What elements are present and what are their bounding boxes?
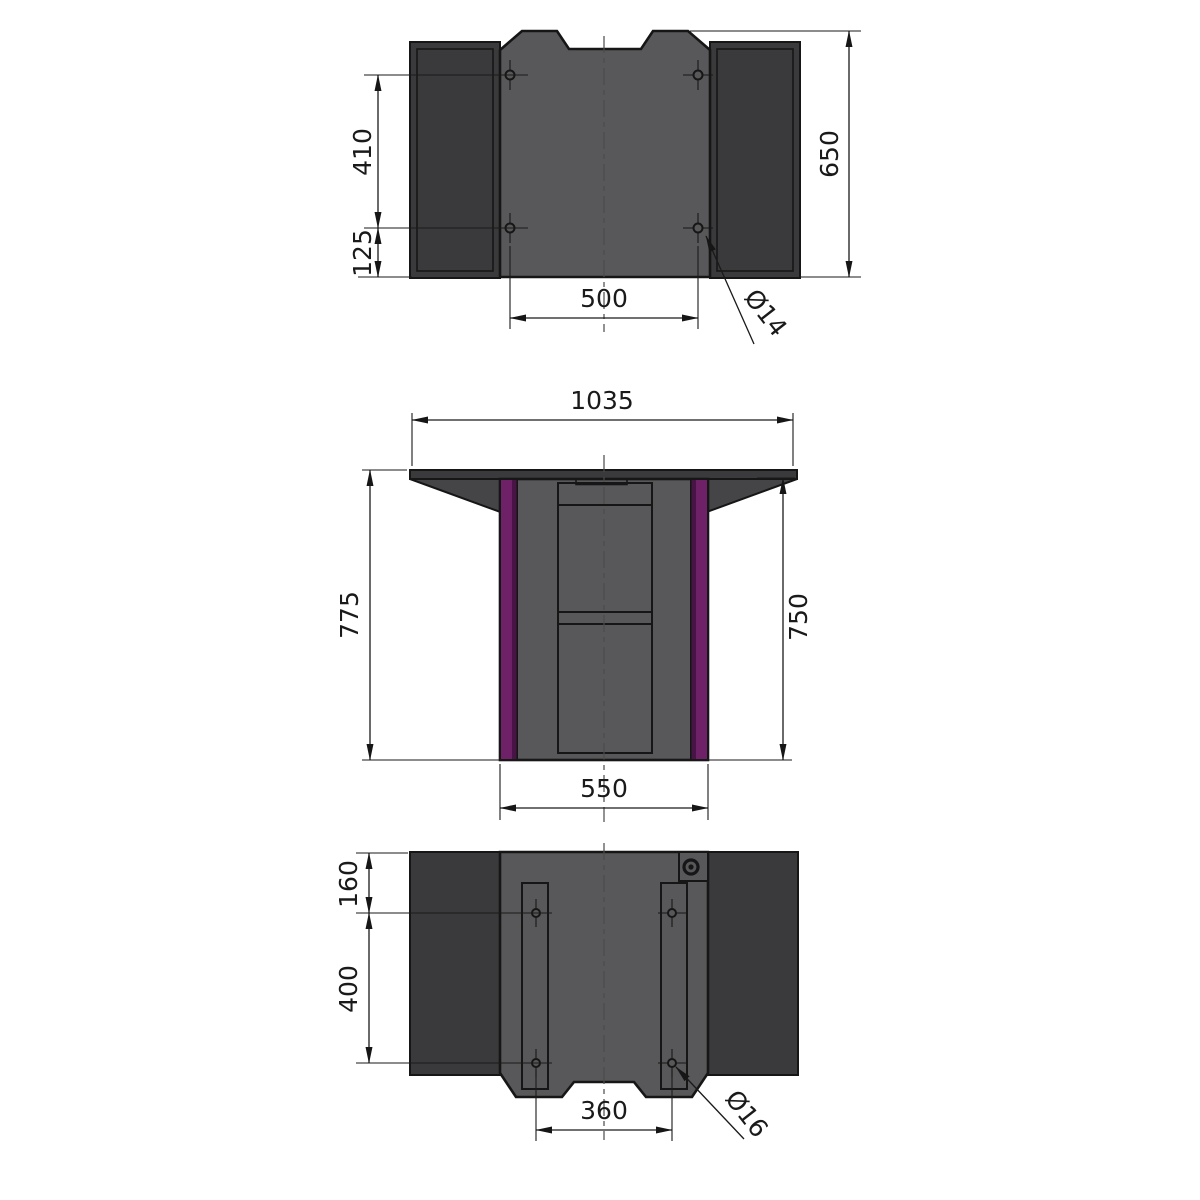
dim-text-125: 125 xyxy=(348,229,377,277)
bolt-hole xyxy=(668,909,676,917)
dim-text-1035: 1035 xyxy=(570,386,634,415)
bolt-hole xyxy=(694,71,703,80)
drawing-root: 410 125 650 500 Ø14 xyxy=(334,31,861,1143)
tabletop-wing-left xyxy=(410,479,503,513)
dim-text-775: 775 xyxy=(335,591,364,639)
technical-drawing: 410 125 650 500 Ø14 xyxy=(0,0,1200,1200)
dim-text-360: 360 xyxy=(580,1096,628,1125)
bottom-view: 160 400 360 Ø16 xyxy=(334,843,798,1143)
dim-text-750: 750 xyxy=(784,593,813,641)
side-panel-left xyxy=(410,42,500,278)
dim-text-550: 550 xyxy=(580,774,628,803)
dim-text-400: 400 xyxy=(334,965,363,1013)
dim-text-dia16: Ø16 xyxy=(719,1085,774,1143)
side-rail-left-shade xyxy=(512,480,517,759)
base-plate xyxy=(500,31,710,277)
top-view: 410 125 650 500 Ø14 xyxy=(348,31,861,344)
bushing-center xyxy=(688,864,693,869)
front-view: 1035 775 750 550 xyxy=(335,386,813,822)
drawing-page: 410 125 650 500 Ø14 xyxy=(0,0,1200,1200)
side-panel-right xyxy=(710,42,800,278)
dim-text-500: 500 xyxy=(580,284,628,313)
dim-text-410: 410 xyxy=(348,128,377,176)
dim-text-650: 650 xyxy=(815,130,844,178)
column-front-panel xyxy=(558,483,652,753)
dim-text-dia14: Ø14 xyxy=(738,284,793,342)
side-panel-left xyxy=(410,852,500,1075)
side-panel-right xyxy=(708,852,798,1075)
bolt-hole xyxy=(694,224,703,233)
side-rail-right-shade xyxy=(692,480,697,759)
bolt-hole xyxy=(668,1059,676,1067)
dim-text-160: 160 xyxy=(334,860,363,908)
